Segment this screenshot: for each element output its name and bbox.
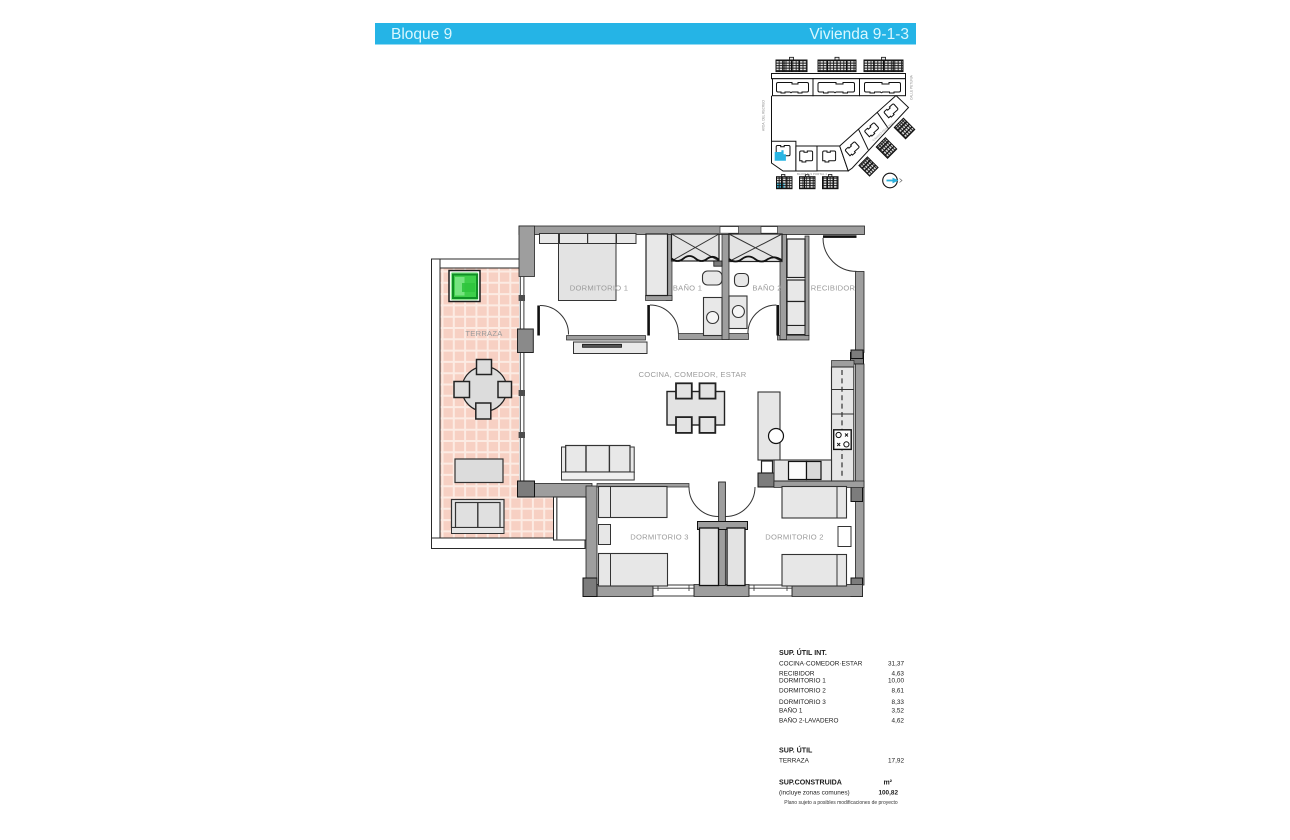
svg-text:100,82: 100,82 [878, 790, 898, 797]
svg-text:BAÑO 1: BAÑO 1 [779, 706, 803, 715]
svg-text:COCINA·COMEDOR·ESTAR: COCINA·COMEDOR·ESTAR [779, 661, 863, 668]
svg-text:BAÑO 2: BAÑO 2 [752, 284, 781, 293]
svg-text:31,37: 31,37 [888, 661, 904, 668]
svg-text:(incluye zonas comunes): (incluye zonas comunes) [779, 790, 850, 797]
svg-text:COCINA, COMEDOR, ESTAR: COCINA, COMEDOR, ESTAR [639, 370, 747, 379]
svg-text:Vivienda 9-1-3: Vivienda 9-1-3 [809, 26, 909, 43]
svg-text:DORMITORIO 2: DORMITORIO 2 [779, 688, 826, 695]
svg-text:3,52: 3,52 [892, 708, 905, 715]
svg-text:Bloque 9: Bloque 9 [391, 26, 452, 43]
svg-text:DORMITORIO 2: DORMITORIO 2 [765, 533, 824, 542]
svg-text:17,92: 17,92 [888, 758, 904, 765]
svg-text:10,00: 10,00 [888, 678, 904, 685]
svg-text:DORMITORIO 3: DORMITORIO 3 [630, 533, 689, 542]
svg-text:DORMITORIO 1: DORMITORIO 1 [570, 284, 629, 293]
svg-text:4,62: 4,62 [892, 718, 905, 725]
svg-text:SUP. ÚTIL INT.: SUP. ÚTIL INT. [779, 648, 827, 657]
svg-text:BAÑO 2-LAVADERO: BAÑO 2-LAVADERO [779, 716, 838, 725]
svg-text:RECIBIDOR: RECIBIDOR [811, 284, 856, 293]
svg-text:TERRAZA: TERRAZA [779, 758, 810, 765]
svg-text:RECIBIDOR: RECIBIDOR [779, 671, 815, 678]
svg-text:TERRAZA: TERRAZA [465, 329, 503, 338]
svg-text:m²: m² [883, 780, 892, 787]
svg-text:BAÑO 1: BAÑO 1 [673, 284, 702, 293]
svg-text:DORMITORIO 3: DORMITORIO 3 [779, 699, 826, 706]
svg-text:CALLE PETUNIA: CALLE PETUNIA [910, 74, 914, 100]
svg-text:4,63: 4,63 [892, 671, 905, 678]
svg-text:8,33: 8,33 [892, 699, 905, 706]
svg-text:AVDA. DEL RECREO: AVDA. DEL RECREO [762, 100, 766, 131]
svg-text:SUP.CONSTRUIDA: SUP.CONSTRUIDA [779, 779, 842, 787]
svg-text:DORMITORIO 1: DORMITORIO 1 [779, 678, 826, 685]
svg-text:8,61: 8,61 [892, 688, 905, 695]
svg-text:SUP. ÚTIL: SUP. ÚTIL [779, 746, 813, 755]
svg-text:BLOQUE 9 PORTAL 1: BLOQUE 9 PORTAL 1 [797, 172, 827, 176]
svg-text:Plano sujeto a posibles modifi: Plano sujeto a posibles modificaciones d… [784, 800, 898, 806]
